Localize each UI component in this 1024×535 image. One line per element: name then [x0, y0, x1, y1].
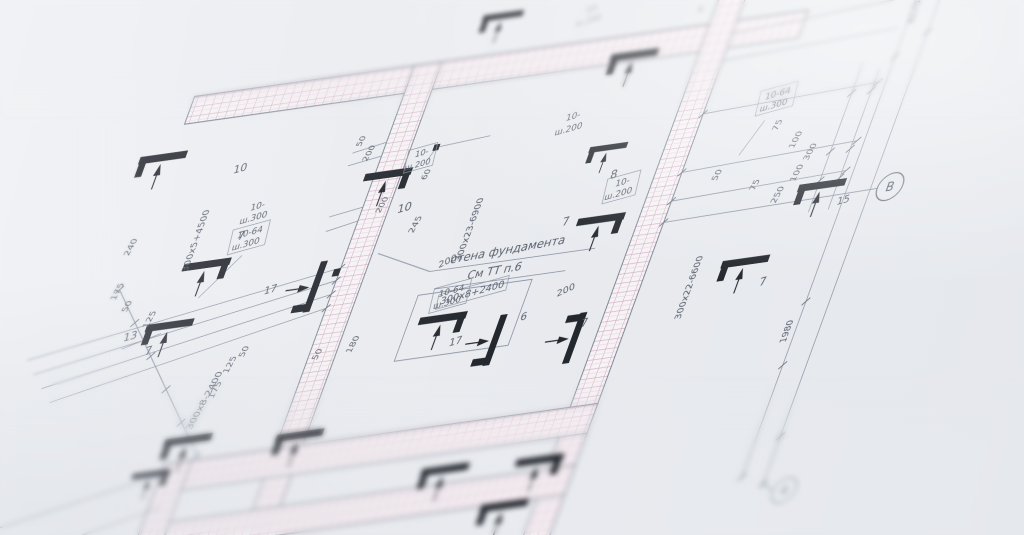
plan-label: 7: [561, 214, 571, 230]
plan-label: 245: [407, 215, 425, 233]
label-text: 50: [237, 345, 252, 358]
label-text: 50: [355, 135, 369, 147]
rebar-marker: [456, 314, 508, 370]
label-text: 13: [122, 328, 139, 344]
label-text: 125: [222, 356, 240, 374]
tick-mark: [738, 473, 747, 481]
plan-label: 6175: [907, 0, 925, 24]
plan-label: 4: [696, 4, 704, 16]
marker-arrow-head: [591, 225, 602, 238]
marker-stub: [478, 19, 489, 32]
plan-label: 1980: [779, 319, 797, 344]
plan-label: 300х22-6600: [673, 255, 706, 320]
plan-label: 50: [710, 169, 725, 182]
marker-arrow-head: [433, 324, 444, 337]
plan-label: 100: [789, 164, 807, 182]
marker-arrow-head: [153, 163, 164, 176]
dimension-line: [763, 0, 945, 484]
dimension-line: [0, 475, 160, 535]
label-text: 300х22-6600: [673, 255, 706, 320]
label-text: 245: [407, 215, 425, 233]
plan-label: ш.200: [553, 121, 583, 138]
rebar-marker: [171, 257, 232, 299]
tick-mark: [802, 298, 811, 306]
tick-mark: [130, 319, 139, 327]
plan-label: 200: [361, 145, 378, 162]
marker-arrow-head: [494, 21, 504, 32]
tick-mark: [162, 385, 171, 393]
rebar-marker: [128, 150, 189, 192]
label-text: 1980: [779, 319, 797, 344]
plan-label: 300х8-2400: [184, 371, 225, 430]
dimension-line: [41, 294, 331, 388]
plan-label: 50: [120, 300, 135, 313]
plan-label: 250: [769, 186, 787, 204]
marker-arrow-head: [556, 335, 570, 344]
tick-mark: [847, 89, 856, 97]
marker-arrow-head: [159, 331, 170, 344]
label-text: 10: [396, 199, 414, 217]
label-text: ш.200: [553, 121, 583, 138]
rebar-marker: [407, 311, 468, 353]
plan-label: ш.200: [574, 13, 602, 30]
label-text: 7: [758, 274, 768, 290]
label-text: 17: [447, 333, 463, 349]
plan-label: 175: [109, 283, 127, 301]
dimension-line: [682, 141, 857, 173]
label-text: 250: [769, 186, 787, 204]
marker-arrow-head: [297, 284, 311, 293]
blueprint-paper: В4 стена фундаментаСм ТТ п.6300х8+240030…: [0, 0, 1024, 535]
label-text: 175: [109, 283, 127, 301]
marker-arrow-head: [735, 267, 746, 280]
dimension-line: [326, 221, 358, 232]
label-text: 50: [120, 300, 135, 313]
plan-label: 200: [557, 281, 576, 299]
plan-label: 7: [758, 274, 768, 290]
label-text: 6175: [907, 0, 925, 24]
dimension-line: [368, 245, 439, 280]
grid-bubble-label: 4: [777, 483, 790, 499]
marker-stub: [159, 444, 171, 460]
marker-arrow-head: [178, 446, 189, 459]
marker-arrow-head: [477, 337, 491, 346]
tick-mark: [778, 361, 787, 369]
marker-arrow-head: [494, 511, 505, 524]
grid-bubble: 4: [768, 476, 801, 505]
plan-label: 75: [771, 119, 786, 131]
rebar-marker: [580, 142, 628, 176]
label-text: 200: [361, 145, 378, 162]
plan-label: 13: [122, 328, 139, 344]
rebar-marker: [566, 212, 627, 254]
tick-mark: [177, 419, 186, 427]
dimension-line: [742, 0, 930, 477]
plan-label: 75: [748, 179, 763, 191]
dimension-line: [739, 120, 765, 155]
plan-label: 180: [345, 335, 363, 353]
rebar-marker: [536, 312, 588, 368]
grid-bubble: В: [872, 171, 908, 202]
plan-label: 10: [232, 160, 249, 176]
tick-mark: [923, 28, 932, 36]
marker-arrow-head: [197, 270, 208, 283]
label-text: 300: [802, 143, 820, 161]
label-text: 7: [561, 214, 571, 230]
label-text: ш.200: [574, 13, 602, 30]
dimension-line: [329, 207, 363, 217]
label-text: 240: [123, 238, 141, 256]
label-text: 50: [710, 169, 725, 182]
marker-stub: [475, 510, 487, 526]
dimension-line: [0, 475, 160, 535]
label-text: 10: [232, 160, 249, 176]
tick-mark: [826, 148, 835, 156]
tick-mark: [846, 145, 855, 153]
plan-label: 100: [787, 130, 805, 148]
dimension-line: [436, 136, 490, 148]
plan-label: 17: [447, 333, 463, 349]
plan-label: 50: [355, 135, 369, 147]
dimension-line: [27, 268, 341, 361]
label-text: 180: [345, 335, 363, 353]
label-text: 4: [696, 4, 704, 16]
plan-label: 125: [222, 356, 240, 374]
tick-mark: [891, 53, 900, 61]
dimension-line: [0, 507, 160, 535]
marker-stub: [716, 266, 728, 282]
tick-mark: [867, 86, 876, 94]
label-text: 100: [789, 164, 807, 182]
label-text: 75: [748, 179, 763, 191]
tick-mark: [776, 432, 785, 440]
plan-label: 240: [123, 238, 141, 256]
label-text: 60: [420, 169, 434, 181]
grid-bubble-label: В: [883, 179, 897, 195]
label-text: 300х8-2400: [184, 371, 225, 430]
rebar-marker: [276, 261, 328, 317]
plan-label: 300: [802, 143, 820, 161]
label-text: 200: [557, 281, 576, 299]
label-text: 17: [262, 281, 278, 297]
plan-label: 50: [237, 345, 252, 358]
marker-arrow-head: [600, 152, 609, 162]
dimension-line: [33, 281, 336, 375]
plan-label: 10: [396, 199, 414, 217]
marker-stub: [793, 189, 805, 205]
rebar-marker: [473, 10, 524, 46]
walls-layer: [0, 0, 833, 535]
plan-label: 60: [420, 169, 434, 181]
blueprint-photo: В4 стена фундаментаСм ТТ п.6300х8+240030…: [0, 0, 1024, 535]
label-text: 100: [787, 130, 805, 148]
marker-stub: [134, 162, 146, 178]
tick-mark: [759, 480, 768, 488]
label-text: 75: [771, 119, 786, 131]
marker-stub: [585, 151, 595, 164]
plan-svg: В4 стена фундаментаСм ТТ п.6300х8+240030…: [0, 0, 1024, 535]
plan-label: 17: [262, 281, 278, 297]
